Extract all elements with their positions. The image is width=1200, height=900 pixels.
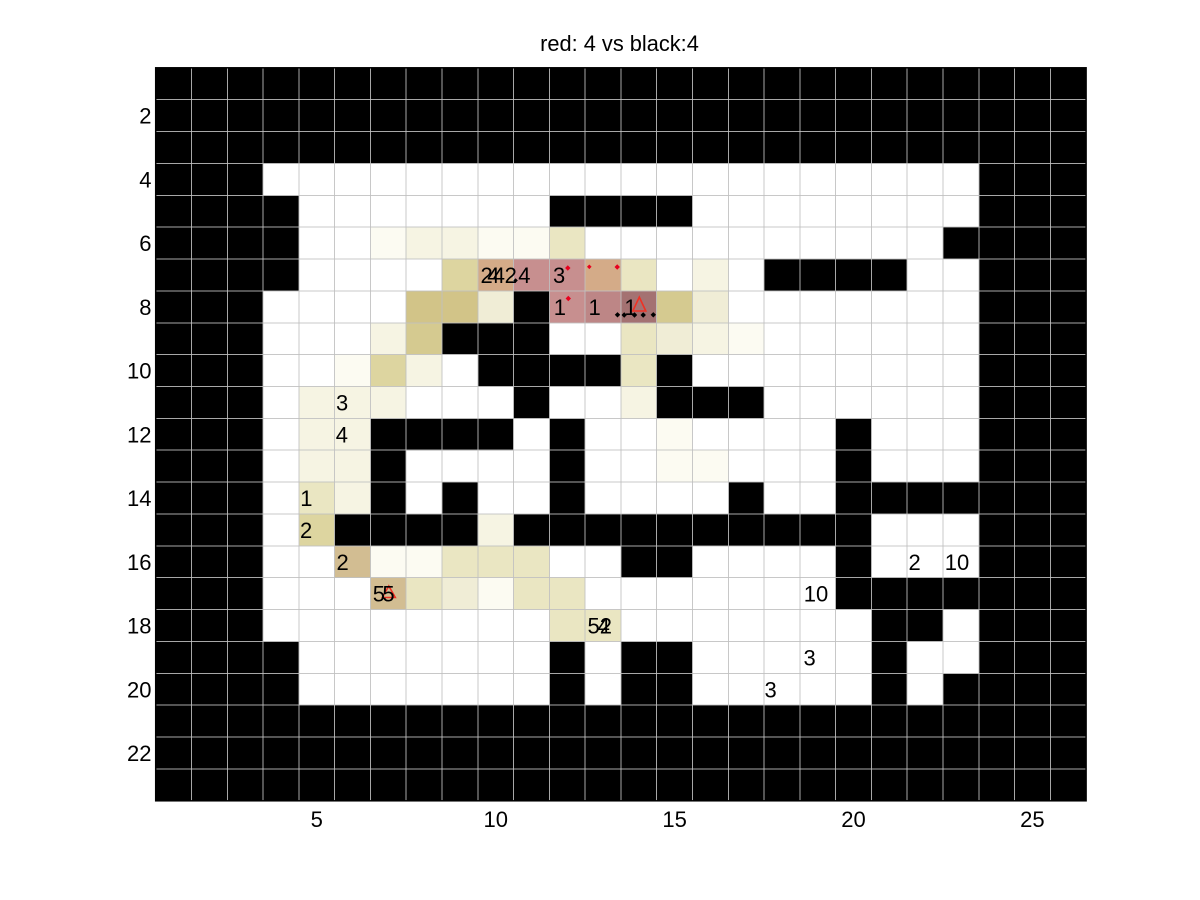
svg-text:3: 3 [765, 677, 777, 702]
svg-text:20: 20 [127, 677, 151, 702]
svg-text:10: 10 [945, 550, 969, 575]
svg-text:1: 1 [300, 486, 312, 511]
svg-text:8: 8 [139, 295, 151, 320]
svg-text:16: 16 [127, 550, 151, 575]
svg-text:18: 18 [127, 614, 151, 639]
svg-text:10: 10 [127, 359, 151, 384]
svg-text:12: 12 [127, 422, 151, 447]
svg-text:10: 10 [483, 807, 507, 832]
svg-text:4: 4 [518, 263, 530, 288]
svg-text:4: 4 [487, 263, 499, 288]
svg-text:15: 15 [662, 807, 686, 832]
svg-text:4: 4 [139, 167, 151, 192]
svg-text:1: 1 [589, 295, 601, 320]
svg-text:5: 5 [382, 582, 394, 607]
svg-text:5: 5 [311, 807, 323, 832]
svg-text:2: 2 [300, 518, 312, 543]
svg-text:3: 3 [336, 390, 348, 415]
svg-text:25: 25 [1020, 807, 1044, 832]
svg-text:2: 2 [909, 550, 921, 575]
svg-text:22: 22 [127, 741, 151, 766]
svg-text:14: 14 [127, 486, 151, 511]
svg-text:2: 2 [505, 263, 517, 288]
svg-text:10: 10 [804, 582, 828, 607]
svg-text:20: 20 [841, 807, 865, 832]
svg-text:1: 1 [554, 295, 566, 320]
svg-text:2: 2 [139, 104, 151, 129]
svg-text:4: 4 [336, 422, 348, 447]
svg-text:3: 3 [553, 263, 565, 288]
svg-text:red: 4 vs black:4: red: 4 vs black:4 [540, 31, 699, 56]
svg-text:3: 3 [804, 645, 816, 670]
svg-text:2: 2 [337, 550, 349, 575]
svg-text:6: 6 [139, 231, 151, 256]
svg-text:4: 4 [598, 614, 610, 639]
